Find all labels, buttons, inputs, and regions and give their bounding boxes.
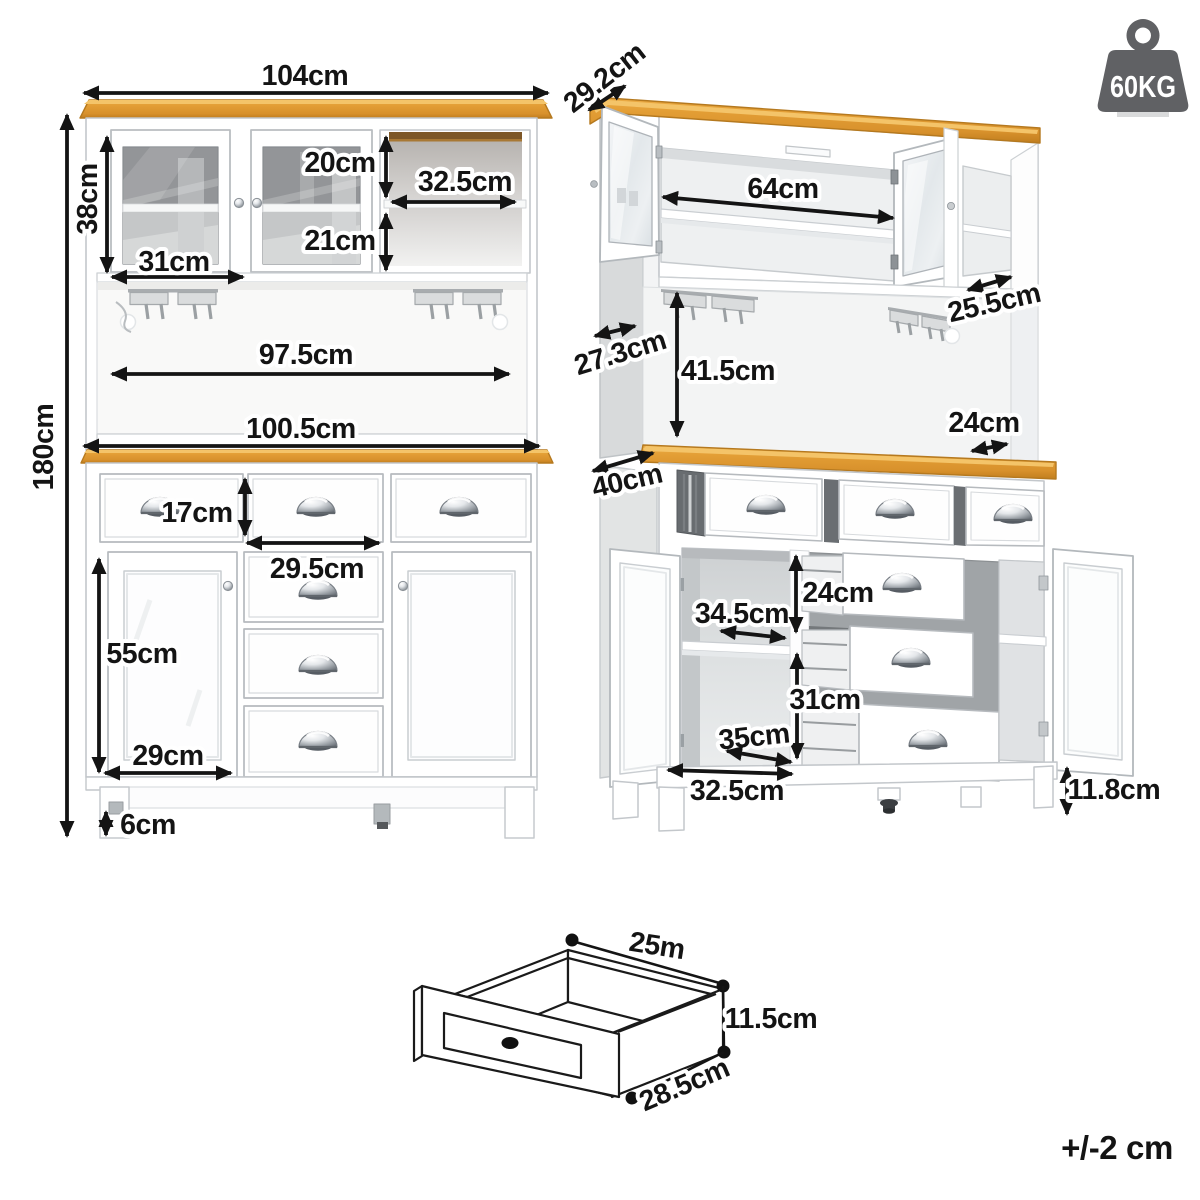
svg-text:31cm: 31cm (138, 246, 209, 278)
svg-text:180cm: 180cm (28, 404, 60, 491)
svg-text:21cm: 21cm (304, 225, 375, 257)
svg-text:34.5cm: 34.5cm (695, 598, 789, 630)
svg-text:11.8cm: 11.8cm (1068, 774, 1161, 806)
svg-text:17cm: 17cm (161, 497, 232, 529)
svg-text:11.5cm: 11.5cm (725, 1003, 818, 1035)
svg-text:20cm: 20cm (304, 147, 375, 179)
svg-text:97.5cm: 97.5cm (259, 339, 353, 371)
svg-text:29cm: 29cm (132, 740, 203, 772)
svg-text:32.5cm: 32.5cm (690, 775, 784, 807)
svg-text:60KG: 60KG (1110, 69, 1176, 104)
svg-text:64cm: 64cm (747, 173, 818, 205)
svg-text:31cm: 31cm (789, 684, 860, 716)
svg-text:38cm: 38cm (72, 163, 104, 234)
svg-text:6cm: 6cm (120, 809, 176, 841)
svg-text:41.5cm: 41.5cm (681, 355, 775, 387)
svg-text:24cm: 24cm (948, 407, 1019, 439)
svg-text:+/-2 cm: +/-2 cm (1061, 1129, 1173, 1166)
svg-text:100.5cm: 100.5cm (246, 413, 356, 445)
svg-text:55cm: 55cm (106, 638, 177, 670)
svg-text:24cm: 24cm (802, 577, 873, 609)
svg-text:29.5cm: 29.5cm (270, 553, 364, 585)
svg-text:32.5cm: 32.5cm (418, 166, 512, 198)
svg-text:104cm: 104cm (262, 60, 349, 92)
